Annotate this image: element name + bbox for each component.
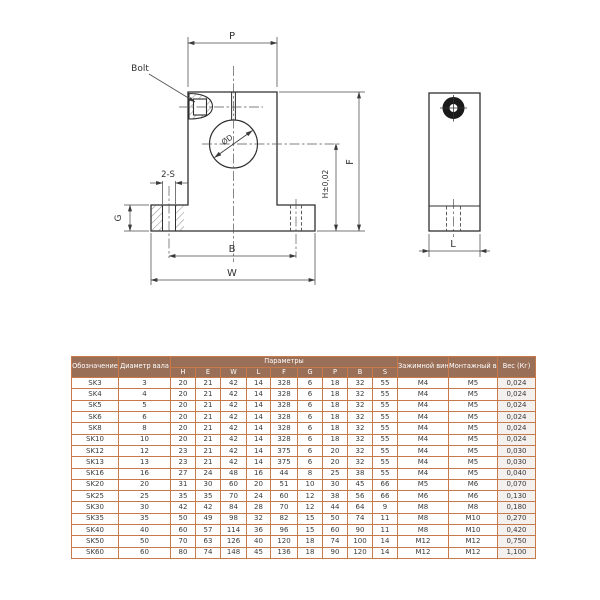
spec-table: Обозначение Диаметр вала Параметры Зажим… [71,356,536,559]
technical-drawing: P Bolt ØD 2-S G B W F H±0,02 L [0,0,600,350]
H-cell: 20 [171,412,196,423]
B-cell: 100 [348,536,373,547]
E-cell: 57 [196,525,221,536]
B-cell: 32 [348,457,373,468]
mount-screw-cell: M5 [449,457,498,468]
header-param-W: W [221,367,247,378]
B-cell: 32 [348,400,373,411]
E-cell: 49 [196,513,221,524]
diameter-cell: 13 [119,457,171,468]
L-cell: 36 [247,525,271,536]
header-param-P: P [323,367,348,378]
designation-cell: SK12 [72,445,119,456]
clamp-screw-cell: M12 [398,536,449,547]
S-cell: 9 [373,502,398,513]
designation-cell: SK50 [72,536,119,547]
weight-cell: 0,030 [498,457,536,468]
L-cell: 16 [247,468,271,479]
weight-cell: 0,750 [498,536,536,547]
H-cell: 20 [171,378,196,389]
table-row: SK66202142143286183255M4M50,024 [72,412,536,423]
dim-h-label: H±0,02 [321,169,330,198]
W-cell: 114 [221,525,247,536]
clamp-screw-cell: M8 [398,502,449,513]
clamp-screw-cell: M4 [398,378,449,389]
dim-b-label: B [229,244,236,255]
P-cell: 18 [323,389,348,400]
front-view [151,66,454,262]
G-cell: 10 [298,479,323,490]
center-lines [169,66,454,262]
table-row: SK40406057114369615609011M8M100,420 [72,525,536,536]
S-cell: 11 [373,513,398,524]
F-cell: 328 [271,389,298,400]
designation-cell: SK40 [72,525,119,536]
weight-cell: 0,030 [498,445,536,456]
P-cell: 44 [323,502,348,513]
designation-cell: SK30 [72,502,119,513]
P-cell: 50 [323,513,348,524]
F-cell: 70 [271,502,298,513]
W-cell: 42 [221,445,247,456]
G-cell: 8 [298,468,323,479]
diameter-cell: 4 [119,389,171,400]
S-cell: 55 [373,445,398,456]
weight-cell: 0,420 [498,525,536,536]
table-row: SK2020313060205110304566M5M60,070 [72,479,536,490]
G-cell: 18 [298,536,323,547]
diameter-cell: 8 [119,423,171,434]
E-cell: 21 [196,445,221,456]
designation-cell: SK13 [72,457,119,468]
weight-cell: 0,024 [498,434,536,445]
weight-cell: 1,100 [498,547,536,558]
E-cell: 21 [196,389,221,400]
H-cell: 23 [171,457,196,468]
table-header: Обозначение Диаметр вала Параметры Зажим… [72,357,536,378]
header-parameters: Параметры [171,357,398,368]
mount-screw-cell: M12 [449,547,498,558]
table-body: SK33202142143286183255M4M50,024SK4420214… [72,378,536,559]
E-cell: 74 [196,547,221,558]
G-cell: 18 [298,547,323,558]
L-cell: 45 [247,547,271,558]
mount-screw-cell: M5 [449,400,498,411]
S-cell: 55 [373,412,398,423]
P-cell: 60 [323,525,348,536]
clamp-screw-cell: M4 [398,445,449,456]
H-cell: 27 [171,468,196,479]
E-cell: 21 [196,457,221,468]
designation-cell: SK60 [72,547,119,558]
S-cell: 55 [373,434,398,445]
diameter-cell: 40 [119,525,171,536]
table-row: SK303042428428701244649M8M80,180 [72,502,536,513]
dim-2s-label: 2-S [161,170,175,180]
P-cell: 90 [323,547,348,558]
clamp-screw-cell: M4 [398,457,449,468]
B-cell: 32 [348,378,373,389]
mount-screw-cell: M10 [449,525,498,536]
B-cell: 32 [348,445,373,456]
diameter-cell: 30 [119,502,171,513]
G-cell: 6 [298,457,323,468]
L-cell: 14 [247,457,271,468]
table-row: SK6060807414845136189012014M12M121,100 [72,547,536,558]
W-cell: 42 [221,378,247,389]
L-cell: 14 [247,412,271,423]
W-cell: 98 [221,513,247,524]
G-cell: 6 [298,423,323,434]
header-param-H: H [171,367,196,378]
drawing-labels: P Bolt ØD 2-S G B W F H±0,02 L [114,31,456,279]
H-cell: 42 [171,502,196,513]
H-cell: 20 [171,434,196,445]
W-cell: 60 [221,479,247,490]
B-cell: 32 [348,389,373,400]
P-cell: 18 [323,423,348,434]
H-cell: 35 [171,491,196,502]
F-cell: 96 [271,525,298,536]
mount-screw-cell: M6 [449,491,498,502]
H-cell: 60 [171,525,196,536]
F-cell: 328 [271,423,298,434]
dimensions [124,37,490,285]
E-cell: 21 [196,423,221,434]
S-cell: 14 [373,536,398,547]
clamp-screw-cell: M4 [398,389,449,400]
table-row: SK1010202142143286183255M4M50,024 [72,434,536,445]
B-cell: 45 [348,479,373,490]
header-param-F: F [271,367,298,378]
L-cell: 14 [247,400,271,411]
table-row: SK44202142143286183255M4M50,024 [72,389,536,400]
S-cell: 55 [373,400,398,411]
G-cell: 12 [298,491,323,502]
S-cell: 55 [373,457,398,468]
W-cell: 70 [221,491,247,502]
diameter-cell: 5 [119,400,171,411]
table-row: SK3535504998328215507411M8M100,270 [72,513,536,524]
G-cell: 6 [298,445,323,456]
table-row: SK1313232142143756203255M4M50,030 [72,457,536,468]
S-cell: 55 [373,423,398,434]
G-cell: 6 [298,434,323,445]
clamp-screw-cell: M8 [398,513,449,524]
dim-l-label: L [450,239,456,250]
E-cell: 35 [196,491,221,502]
designation-cell: SK6 [72,412,119,423]
S-cell: 11 [373,525,398,536]
table-row: SK1212232142143756203255M4M50,030 [72,445,536,456]
B-cell: 38 [348,468,373,479]
designation-cell: SK5 [72,400,119,411]
designation-cell: SK10 [72,434,119,445]
B-cell: 32 [348,423,373,434]
S-cell: 55 [373,468,398,479]
E-cell: 24 [196,468,221,479]
weight-cell: 0,024 [498,378,536,389]
diameter-cell: 3 [119,378,171,389]
mount-screw-cell: M6 [449,479,498,490]
clamp-screw-cell: M6 [398,491,449,502]
L-cell: 14 [247,378,271,389]
L-cell: 20 [247,479,271,490]
side-view [429,93,480,231]
header-param-E: E [196,367,221,378]
F-cell: 375 [271,457,298,468]
E-cell: 21 [196,412,221,423]
weight-cell: 0,024 [498,389,536,400]
H-cell: 20 [171,400,196,411]
P-cell: 20 [323,445,348,456]
G-cell: 12 [298,502,323,513]
W-cell: 42 [221,457,247,468]
clamp-screw-cell: M8 [398,525,449,536]
diameter-cell: 16 [119,468,171,479]
P-cell: 18 [323,412,348,423]
S-cell: 14 [373,547,398,558]
F-cell: 328 [271,400,298,411]
diameter-cell: 20 [119,479,171,490]
diameter-cell: 10 [119,434,171,445]
H-cell: 31 [171,479,196,490]
F-cell: 82 [271,513,298,524]
header-mount-screw: Монтажный винт [449,357,498,378]
G-cell: 15 [298,525,323,536]
clamp-screw-cell: M5 [398,479,449,490]
diameter-cell: 35 [119,513,171,524]
G-cell: 6 [298,400,323,411]
mount-screw-cell: M8 [449,502,498,513]
mount-screw-cell: M5 [449,468,498,479]
L-cell: 40 [247,536,271,547]
header-param-G: G [298,367,323,378]
W-cell: 42 [221,434,247,445]
G-cell: 15 [298,513,323,524]
F-cell: 51 [271,479,298,490]
B-cell: 120 [348,547,373,558]
F-cell: 136 [271,547,298,558]
clamp-screw-cell: M4 [398,400,449,411]
G-cell: 6 [298,389,323,400]
mount-screw-cell: M5 [449,389,498,400]
H-cell: 20 [171,423,196,434]
clamp-screw-cell: M4 [398,423,449,434]
P-cell: 18 [323,434,348,445]
clamp-screw-cell: M4 [398,434,449,445]
mount-screw-cell: M12 [449,536,498,547]
header-param-S: S [373,367,398,378]
designation-cell: SK3 [72,378,119,389]
designation-cell: SK8 [72,423,119,434]
E-cell: 21 [196,400,221,411]
mount-screw-cell: M5 [449,423,498,434]
H-cell: 50 [171,513,196,524]
table-row: SK55202142143286183255M4M50,024 [72,400,536,411]
L-cell: 28 [247,502,271,513]
L-cell: 32 [247,513,271,524]
F-cell: 328 [271,412,298,423]
B-cell: 74 [348,513,373,524]
diameter-cell: 6 [119,412,171,423]
S-cell: 66 [373,491,398,502]
W-cell: 42 [221,389,247,400]
header-clamp-screw: Зажимной винт [398,357,449,378]
designation-cell: SK20 [72,479,119,490]
table-row: SK161627244816448253855M4M50,040 [72,468,536,479]
P-cell: 25 [323,468,348,479]
W-cell: 48 [221,468,247,479]
E-cell: 42 [196,502,221,513]
diameter-cell: 12 [119,445,171,456]
G-cell: 6 [298,412,323,423]
L-cell: 14 [247,389,271,400]
header-param-L: L [247,367,271,378]
mount-screw-cell: M5 [449,412,498,423]
E-cell: 63 [196,536,221,547]
F-cell: 60 [271,491,298,502]
diameter-cell: 25 [119,491,171,502]
W-cell: 42 [221,400,247,411]
L-cell: 14 [247,445,271,456]
weight-cell: 0,270 [498,513,536,524]
weight-cell: 0,180 [498,502,536,513]
F-cell: 328 [271,434,298,445]
dim-w-label: W [227,268,237,279]
P-cell: 30 [323,479,348,490]
B-cell: 90 [348,525,373,536]
diameter-cell: 60 [119,547,171,558]
W-cell: 148 [221,547,247,558]
H-cell: 20 [171,389,196,400]
designation-cell: SK16 [72,468,119,479]
E-cell: 30 [196,479,221,490]
H-cell: 23 [171,445,196,456]
dim-f-label: F [345,159,356,165]
header-param-B: B [348,367,373,378]
W-cell: 42 [221,412,247,423]
mount-screw-cell: M5 [449,378,498,389]
weight-cell: 0,024 [498,423,536,434]
mount-screw-cell: M5 [449,434,498,445]
P-cell: 18 [323,378,348,389]
P-cell: 38 [323,491,348,502]
section-hatch [152,206,184,231]
W-cell: 84 [221,502,247,513]
P-cell: 74 [323,536,348,547]
table-row: SK33202142143286183255M4M50,024 [72,378,536,389]
table-row: SK88202142143286183255M4M50,024 [72,423,536,434]
F-cell: 328 [271,378,298,389]
mount-screw-cell: M5 [449,445,498,456]
B-cell: 32 [348,434,373,445]
L-cell: 14 [247,423,271,434]
header-designation: Обозначение [72,357,119,378]
W-cell: 42 [221,423,247,434]
table-row: SK5050706312640120187410014M12M120,750 [72,536,536,547]
F-cell: 120 [271,536,298,547]
L-cell: 14 [247,434,271,445]
F-cell: 44 [271,468,298,479]
B-cell: 56 [348,491,373,502]
diameter-cell: 50 [119,536,171,547]
designation-cell: SK35 [72,513,119,524]
P-cell: 20 [323,457,348,468]
weight-cell: 0,130 [498,491,536,502]
page: P Bolt ØD 2-S G B W F H±0,02 L Обозначен… [0,0,600,600]
S-cell: 55 [373,389,398,400]
clamp-screw-cell: M4 [398,412,449,423]
B-cell: 64 [348,502,373,513]
H-cell: 80 [171,547,196,558]
designation-cell: SK25 [72,491,119,502]
mount-screw-cell: M10 [449,513,498,524]
B-cell: 32 [348,412,373,423]
P-cell: 18 [323,400,348,411]
table-row: SK2525353570246012385666M6M60,130 [72,491,536,502]
weight-cell: 0,040 [498,468,536,479]
header-shaft-diameter: Диаметр вала [119,357,171,378]
S-cell: 55 [373,378,398,389]
L-cell: 24 [247,491,271,502]
dim-g-label: G [114,214,124,221]
E-cell: 21 [196,378,221,389]
weight-cell: 0,070 [498,479,536,490]
clamp-screw-cell: M12 [398,547,449,558]
dim-p-label: P [229,31,235,42]
designation-cell: SK4 [72,389,119,400]
H-cell: 70 [171,536,196,547]
header-weight: Вес (Кг) [498,357,536,378]
S-cell: 66 [373,479,398,490]
bolt-label: Bolt [131,64,149,74]
G-cell: 6 [298,378,323,389]
W-cell: 126 [221,536,247,547]
F-cell: 375 [271,445,298,456]
weight-cell: 0,024 [498,412,536,423]
E-cell: 21 [196,434,221,445]
clamp-screw-cell: M4 [398,468,449,479]
weight-cell: 0,024 [498,400,536,411]
